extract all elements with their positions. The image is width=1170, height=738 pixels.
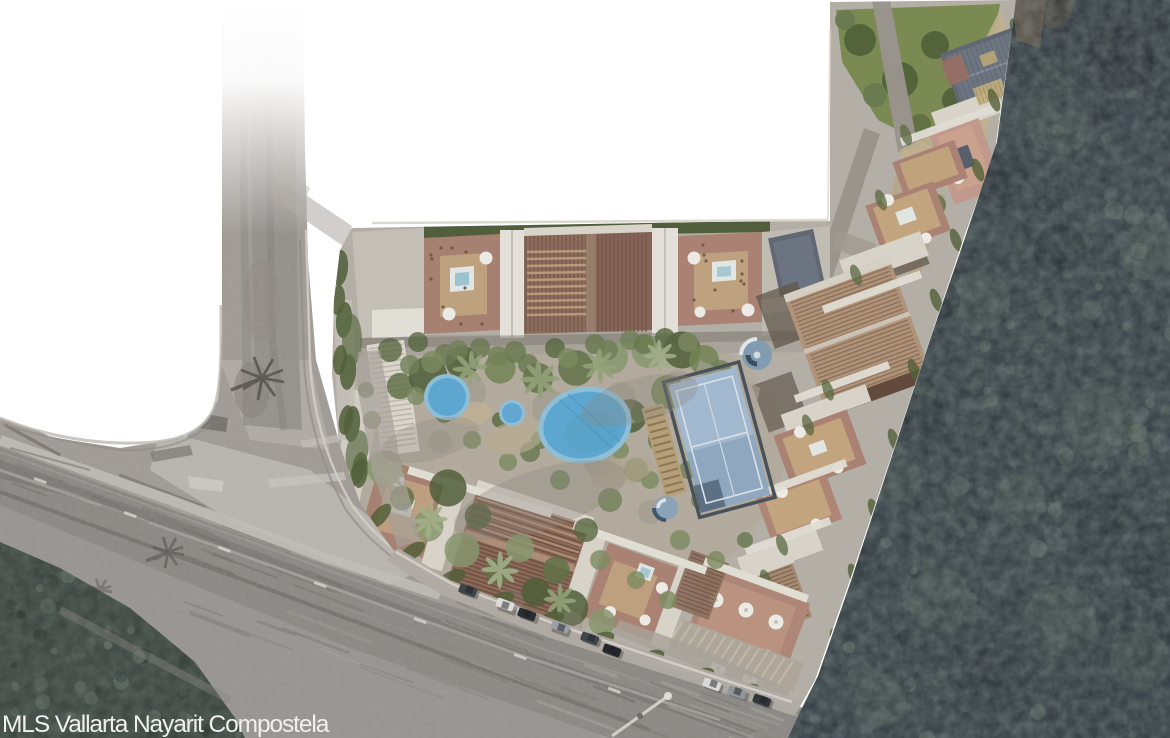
svg-text:MLS Vallarta Nayarit Compostel: MLS Vallarta Nayarit Compostela <box>2 711 330 738</box>
